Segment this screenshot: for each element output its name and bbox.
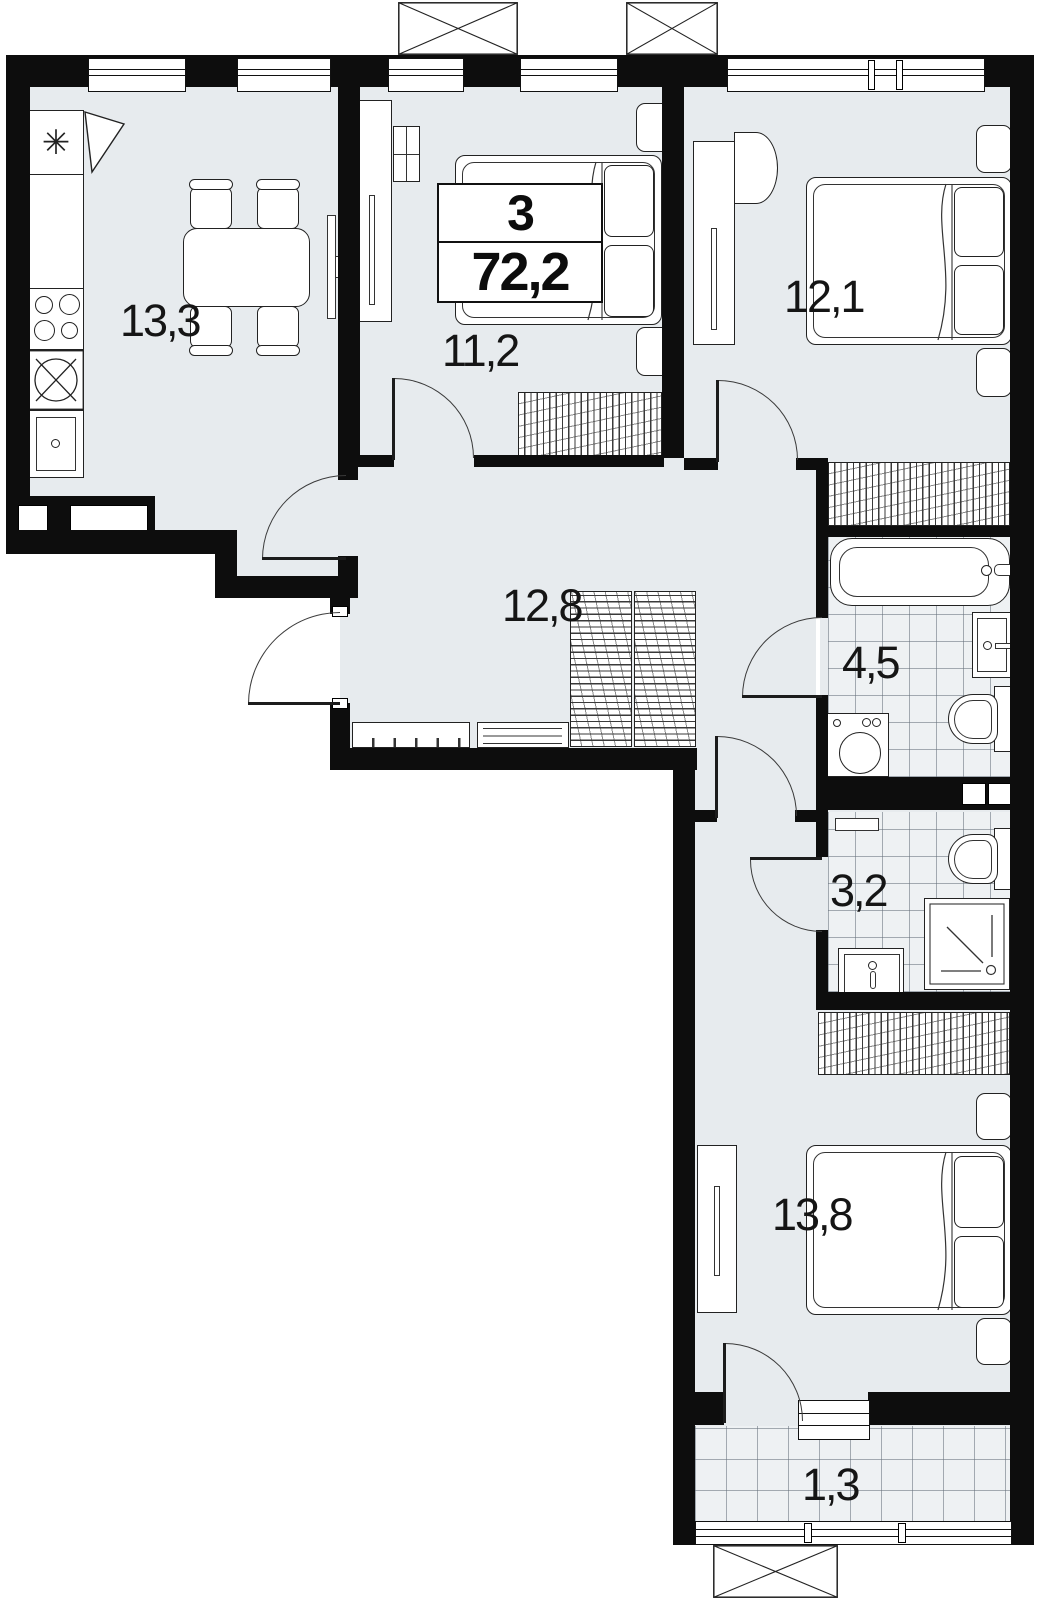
wall-segment: [684, 458, 718, 470]
wm-drum-icon: [839, 732, 881, 774]
room-label-hallway: 12,8: [502, 583, 582, 628]
glazing-mullion: [898, 1523, 906, 1543]
bathroom-door: [742, 695, 822, 698]
entrance-door: [248, 702, 340, 705]
wall-segment: [1010, 55, 1034, 1545]
coat-rack: [352, 722, 470, 748]
chair: [257, 306, 299, 348]
window: [237, 58, 331, 92]
wall-segment: [695, 1392, 724, 1425]
toilet-bowl: [948, 694, 998, 744]
tv-panel: [714, 1186, 720, 1276]
faucet-icon: [868, 961, 877, 970]
wall-segment: [474, 455, 664, 467]
toilet: [948, 686, 1012, 752]
kitchen-sink-icon: [28, 350, 84, 410]
corridor-door: [715, 736, 718, 818]
wm-knob-icon: [872, 718, 881, 727]
balcony-basket-icon: [398, 2, 518, 55]
wall-segment: [816, 458, 828, 618]
bathtub-basin: [839, 547, 989, 597]
pillow: [954, 265, 1004, 335]
desk: [693, 141, 735, 345]
summary-box: 3 72,2: [437, 183, 603, 303]
toilet-bowl: [948, 834, 998, 884]
wall-segment: [816, 992, 1012, 1010]
faucet-icon: [983, 641, 992, 650]
room-label-bedroom-center: 11,2: [442, 328, 518, 373]
bedroom-center-door: [392, 378, 395, 460]
wall-segment: [695, 810, 717, 822]
wall-segment: [6, 55, 30, 535]
faucet-handle-icon: [870, 971, 876, 989]
nightstand: [976, 1093, 1012, 1140]
pillow: [954, 1236, 1004, 1308]
window-mullion: [868, 60, 875, 90]
wall-segment: [673, 748, 695, 1545]
cabinet-handle-icon: [51, 439, 60, 448]
shower-drain-icon: [925, 899, 1009, 989]
room-label-kitchen: 13,3: [120, 298, 200, 343]
wall-segment: [338, 556, 358, 598]
fridge: ✳: [28, 110, 84, 176]
towel-rail: [835, 818, 879, 831]
room-label-bathroom: 4,5: [842, 640, 899, 685]
bedroom-right-door: [716, 380, 719, 462]
wall-segment: [358, 455, 394, 467]
balcony-basket-icon: [626, 2, 718, 55]
window: [727, 58, 985, 92]
bathtub: [830, 538, 1010, 606]
duct-shaft: [988, 783, 1012, 805]
glazing-mullion: [804, 1523, 812, 1543]
stove: [28, 288, 84, 350]
nightstand: [976, 1318, 1012, 1365]
room-label-bedroom-bottom: 13,8: [772, 1192, 852, 1237]
chair: [734, 132, 778, 204]
total-area: 72,2: [439, 243, 601, 301]
wall-segment: [795, 810, 817, 822]
balcony-glazing: [695, 1521, 1012, 1545]
window: [388, 58, 464, 92]
burner-icon: [61, 322, 78, 339]
wm-knob-icon: [862, 718, 871, 727]
room-count: 3: [439, 185, 601, 243]
kitchen-door: [262, 557, 346, 560]
duct-shaft: [70, 505, 148, 531]
pillow: [604, 245, 654, 317]
wardrobe: [828, 462, 1010, 526]
wardrobe: [634, 591, 696, 747]
wc-door: [750, 857, 822, 860]
wall-segment: [816, 526, 1012, 537]
washing-machine: [827, 713, 889, 777]
wall-segment: [6, 530, 237, 554]
chair: [257, 187, 299, 229]
shower-tray: [924, 898, 1010, 990]
balcony-door-sill: [798, 1400, 870, 1440]
bathroom-sink: [972, 612, 1012, 678]
wall-segment: [330, 748, 697, 770]
nightstand: [976, 348, 1012, 397]
entrance-door-swing: [248, 612, 340, 704]
wardrobe: [518, 392, 662, 456]
room-label-balcony: 1,3: [802, 1462, 859, 1507]
fridge-snowflake-icon: ✳: [29, 111, 83, 175]
tv-stand: [697, 1145, 737, 1313]
kitchen-cabinet: [28, 410, 84, 478]
wall-segment: [662, 55, 684, 458]
balcony-basket-icon: [713, 1545, 838, 1598]
faucet-handle-icon: [995, 643, 1011, 649]
pillow: [604, 165, 654, 237]
balcony-door: [723, 1343, 726, 1423]
toilet-seat: [954, 700, 992, 739]
duct-shaft: [962, 783, 986, 805]
burner-icon: [35, 296, 53, 314]
tv-panel: [711, 228, 717, 330]
window: [520, 58, 618, 92]
fridge-door-icon: [84, 108, 126, 176]
duct-shaft: [18, 505, 48, 531]
burner-icon: [59, 294, 80, 315]
wall-segment: [816, 810, 828, 857]
room-label-wc: 3,2: [830, 868, 887, 913]
toilet-seat: [954, 840, 992, 879]
wall-segment: [868, 1392, 1012, 1425]
wardrobe: [818, 1012, 1010, 1075]
drain-icon: [981, 565, 992, 576]
pillow: [954, 187, 1004, 257]
floor-plan: ✳ 3 72,: [0, 0, 1039, 1600]
shelf-unit: [393, 126, 420, 182]
kitchen-table: [183, 228, 310, 307]
window-mullion: [896, 60, 903, 90]
wm-knob-icon: [833, 719, 841, 727]
kitchen-counter: [28, 174, 84, 290]
burner-icon: [34, 320, 55, 341]
nightstand: [976, 125, 1012, 173]
pillow: [954, 1156, 1004, 1228]
room-label-bedroom-right: 12,1: [784, 274, 864, 319]
shoe-shelf: [477, 722, 569, 748]
window: [88, 58, 186, 92]
toilet: [948, 828, 1012, 890]
chair: [190, 187, 232, 229]
tv-panel: [369, 195, 375, 305]
wall-segment: [215, 576, 358, 598]
wall-segment: [338, 55, 360, 455]
